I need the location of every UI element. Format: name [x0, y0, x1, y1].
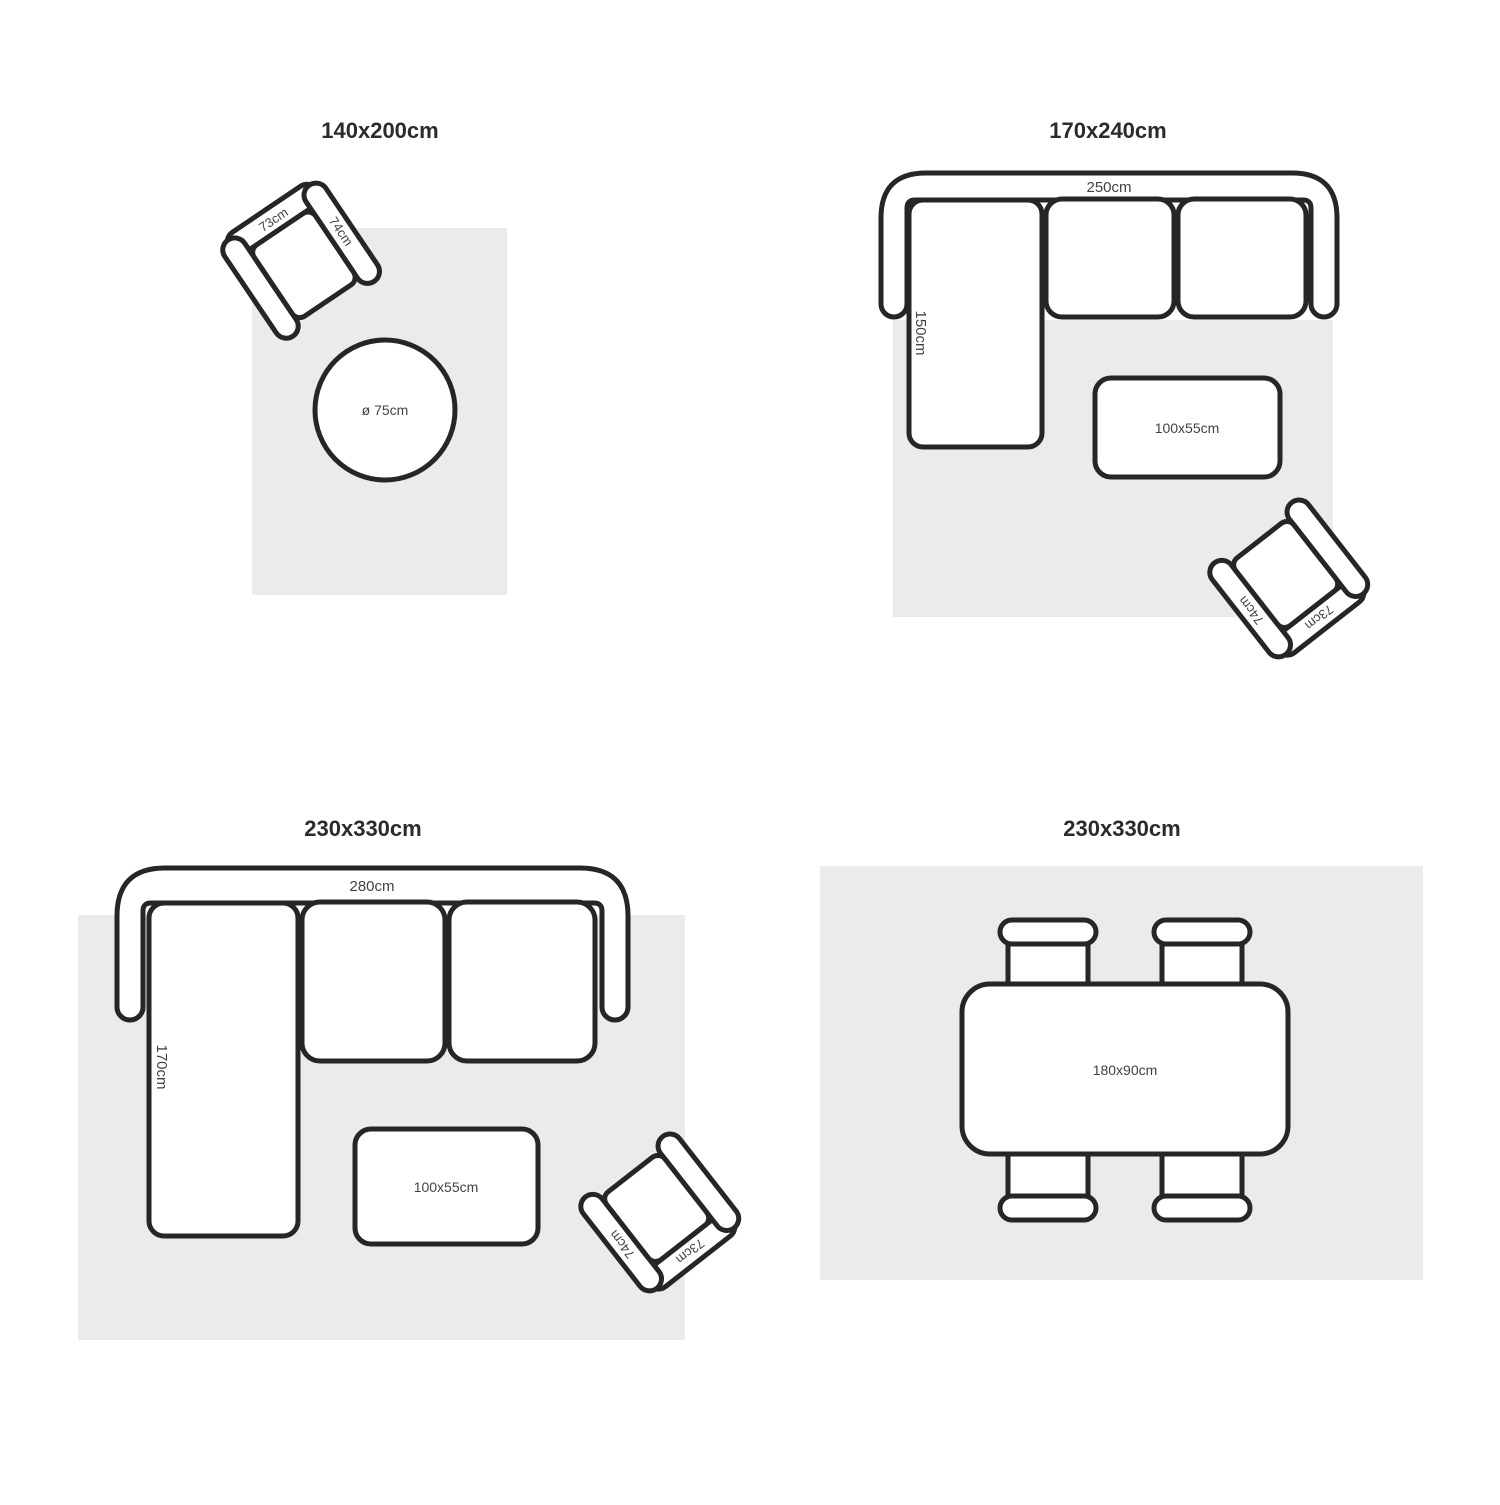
quadrant-170x240: 170x240cm 250cm 150cm 100x55cm 73cm 74cm: [881, 118, 1375, 665]
dining-table-dimension: 180x90cm: [1093, 1062, 1158, 1078]
dining-chair-back: [1154, 1196, 1250, 1220]
coffee-table: 100x55cm: [355, 1129, 538, 1244]
rug-size-title: 140x200cm: [321, 118, 438, 143]
round-table: ø 75cm: [315, 340, 455, 480]
dining-chair-back: [1154, 920, 1250, 944]
rug-size-guide-diagram: 140x200cm 73cm 74cm ø 75cm 170x240cm 250…: [0, 0, 1500, 1500]
sofa-depth-dimension: 150cm: [912, 310, 929, 355]
quadrant-230x330-sofa: 230x330cm 280cm 170cm 100x55cm 73cm 74cm: [78, 816, 746, 1340]
coffee-table-dimension: 100x55cm: [414, 1179, 479, 1195]
rug-size-title: 230x330cm: [1063, 816, 1180, 841]
sofa-cushion: [1178, 199, 1306, 317]
round-table-dimension: ø 75cm: [362, 402, 409, 418]
quadrant-140x200: 140x200cm 73cm 74cm ø 75cm: [216, 118, 507, 595]
sofa-cushion: [302, 902, 445, 1061]
coffee-table: 100x55cm: [1095, 378, 1280, 477]
dining-chair-back: [1000, 920, 1096, 944]
sofa-width-dimension: 280cm: [349, 878, 394, 895]
sofa-chaise: [149, 903, 298, 1236]
rug-size-title: 230x330cm: [304, 816, 421, 841]
rug-size-guide: 140x200cm 73cm 74cm ø 75cm 170x240cm 250…: [0, 0, 1500, 1500]
dining-table: 180x90cm: [962, 984, 1288, 1154]
sofa-depth-dimension: 170cm: [153, 1044, 170, 1089]
sofa-cushion: [1046, 199, 1174, 317]
quadrant-230x330-dining: 230x330cm 180x90cm: [820, 816, 1423, 1280]
coffee-table-dimension: 100x55cm: [1155, 420, 1220, 436]
dining-chair-back: [1000, 1196, 1096, 1220]
sofa-cushion: [449, 902, 595, 1061]
sofa-width-dimension: 250cm: [1086, 179, 1131, 196]
rug-size-title: 170x240cm: [1049, 118, 1166, 143]
